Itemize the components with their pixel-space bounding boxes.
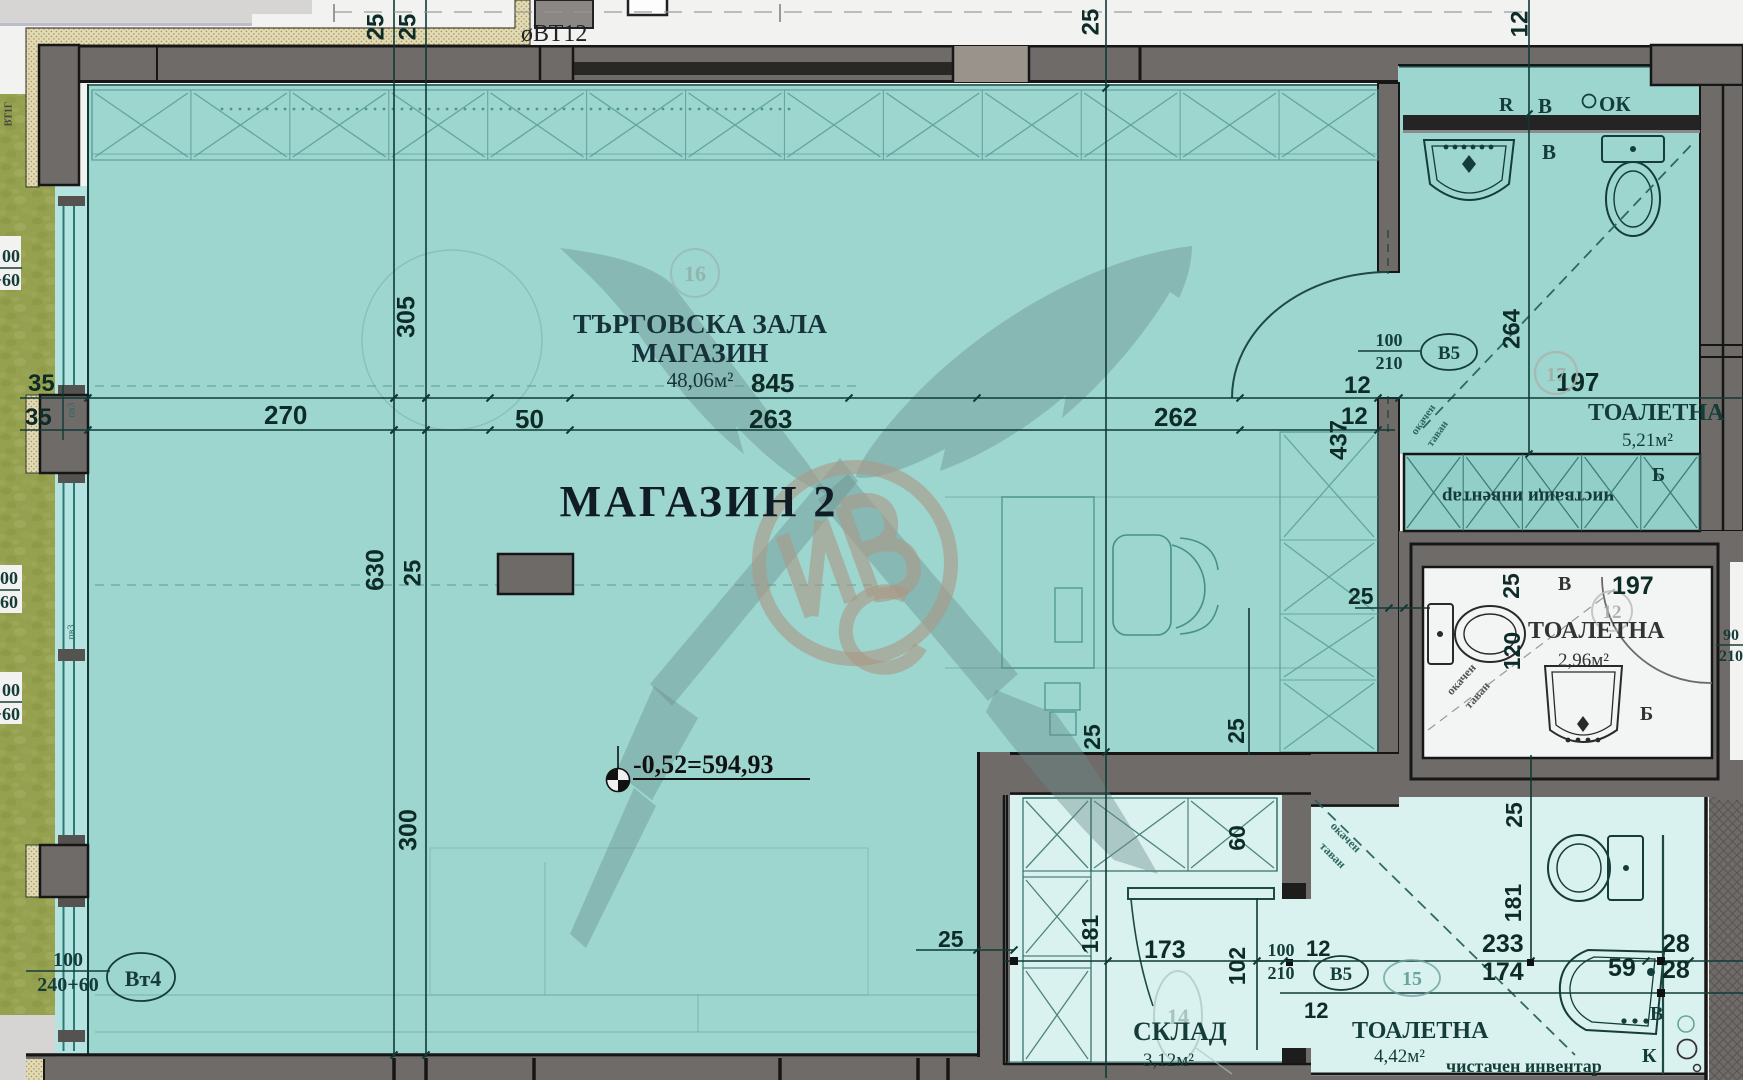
svg-text:262: 262 <box>1154 402 1197 432</box>
svg-text:12: 12 <box>1304 998 1328 1023</box>
svg-text:210: 210 <box>1719 648 1743 665</box>
svg-text:210: 210 <box>1376 353 1403 373</box>
svg-text:263: 263 <box>749 404 792 434</box>
svg-text:174: 174 <box>1482 958 1524 986</box>
svg-text:К: К <box>1642 1045 1657 1067</box>
svg-text:25: 25 <box>1077 9 1104 36</box>
svg-text:50: 50 <box>515 404 544 434</box>
svg-text:173: 173 <box>1144 936 1186 964</box>
svg-text:25: 25 <box>1079 724 1105 750</box>
svg-text:210: 210 <box>1268 963 1295 983</box>
svg-text:чистващи инвентар: чистващи инвентар <box>1442 487 1614 508</box>
svg-text:МАГАЗИН: МАГАЗИН <box>632 337 769 368</box>
svg-text:+60: +60 <box>0 704 20 724</box>
svg-text:R: R <box>1499 94 1514 116</box>
svg-text:102: 102 <box>1224 947 1250 985</box>
svg-text:ТОАЛЕТНА: ТОАЛЕТНА <box>1588 400 1725 426</box>
svg-text:В: В <box>1650 1003 1663 1025</box>
svg-text:35: 35 <box>25 404 52 431</box>
svg-text:4,42м²: 4,42м² <box>1374 1046 1425 1067</box>
svg-text:59: 59 <box>1608 954 1636 982</box>
svg-text:ТОАЛЕТНА: ТОАЛЕТНА <box>1528 618 1665 644</box>
svg-text:12: 12 <box>1506 11 1533 38</box>
svg-text:ОК: ОК <box>1599 92 1631 116</box>
svg-text:100: 100 <box>1376 330 1403 350</box>
svg-text:233: 233 <box>1482 930 1524 958</box>
svg-text:В5: В5 <box>1330 964 1352 985</box>
svg-text:28: 28 <box>1662 956 1690 984</box>
svg-text:15: 15 <box>1402 968 1422 990</box>
svg-text:25: 25 <box>1498 573 1524 599</box>
svg-text:В: В <box>1558 573 1571 595</box>
svg-text:пв3: пв3 <box>66 624 77 639</box>
svg-text:25: 25 <box>1223 718 1249 744</box>
svg-text:100: 100 <box>1268 940 1295 960</box>
svg-text:120: 120 <box>1499 632 1525 670</box>
svg-text:197: 197 <box>1612 572 1654 600</box>
svg-text:845: 845 <box>751 368 794 398</box>
svg-text:25: 25 <box>1501 802 1527 828</box>
svg-text:Вт4: Вт4 <box>125 966 161 991</box>
svg-text:630: 630 <box>362 549 390 591</box>
svg-text:øВТ12: øВТ12 <box>521 21 587 47</box>
svg-text:16: 16 <box>684 261 706 286</box>
svg-text:35: 35 <box>28 370 55 397</box>
svg-text:25: 25 <box>362 14 389 41</box>
svg-text:28: 28 <box>1662 930 1690 958</box>
svg-text:ТЪРГОВСКА ЗАЛА: ТЪРГОВСКА ЗАЛА <box>573 308 827 339</box>
svg-text:300: 300 <box>395 809 423 851</box>
svg-text:60: 60 <box>1224 825 1250 851</box>
svg-text:25: 25 <box>938 926 964 952</box>
svg-text:25: 25 <box>1348 583 1374 609</box>
svg-text:В: В <box>1538 94 1552 118</box>
svg-text:437: 437 <box>1325 420 1352 460</box>
svg-text:-0,52=594,93: -0,52=594,93 <box>633 750 773 779</box>
svg-text:чистачен инвентар: чистачен инвентар <box>1446 1056 1602 1076</box>
svg-text:90: 90 <box>1723 627 1739 644</box>
svg-text:МАГАЗИН 2: МАГАЗИН 2 <box>560 477 839 526</box>
svg-text:3,12м²: 3,12м² <box>1143 1050 1194 1071</box>
svg-text:17: 17 <box>1546 364 1566 386</box>
svg-text:+60: +60 <box>0 270 20 290</box>
svg-text:ТОАЛЕТНА: ТОАЛЕТНА <box>1352 1018 1489 1044</box>
svg-text:5,21м²: 5,21м² <box>1622 430 1673 451</box>
svg-text:00: 00 <box>0 568 18 588</box>
svg-text:В: В <box>1542 140 1556 164</box>
svg-text:Б: Б <box>1640 703 1653 725</box>
svg-text:270: 270 <box>264 400 307 430</box>
svg-text:181: 181 <box>1077 915 1103 954</box>
svg-text:пв3: пв3 <box>66 402 77 417</box>
svg-text:12: 12 <box>1344 372 1371 399</box>
svg-text:240+60: 240+60 <box>37 974 98 996</box>
svg-text:25: 25 <box>399 560 426 587</box>
svg-text:СКЛАД: СКЛАД <box>1133 1017 1227 1046</box>
svg-text:25: 25 <box>394 14 421 41</box>
svg-text:ВТ1Г: ВТ1Г <box>3 102 14 127</box>
svg-text:48,06м²: 48,06м² <box>667 368 734 392</box>
svg-text:12: 12 <box>1306 936 1330 961</box>
svg-text:2,96м²: 2,96м² <box>1558 650 1609 671</box>
svg-text:264: 264 <box>1498 308 1525 349</box>
svg-text:181: 181 <box>1500 884 1526 923</box>
svg-text:100: 100 <box>53 949 83 971</box>
svg-text:00: 00 <box>2 680 20 700</box>
svg-text:305: 305 <box>393 296 421 338</box>
svg-text:Б: Б <box>1652 464 1665 486</box>
svg-text:+60: +60 <box>0 592 18 612</box>
svg-text:00: 00 <box>2 246 20 266</box>
svg-text:В5: В5 <box>1438 343 1460 364</box>
